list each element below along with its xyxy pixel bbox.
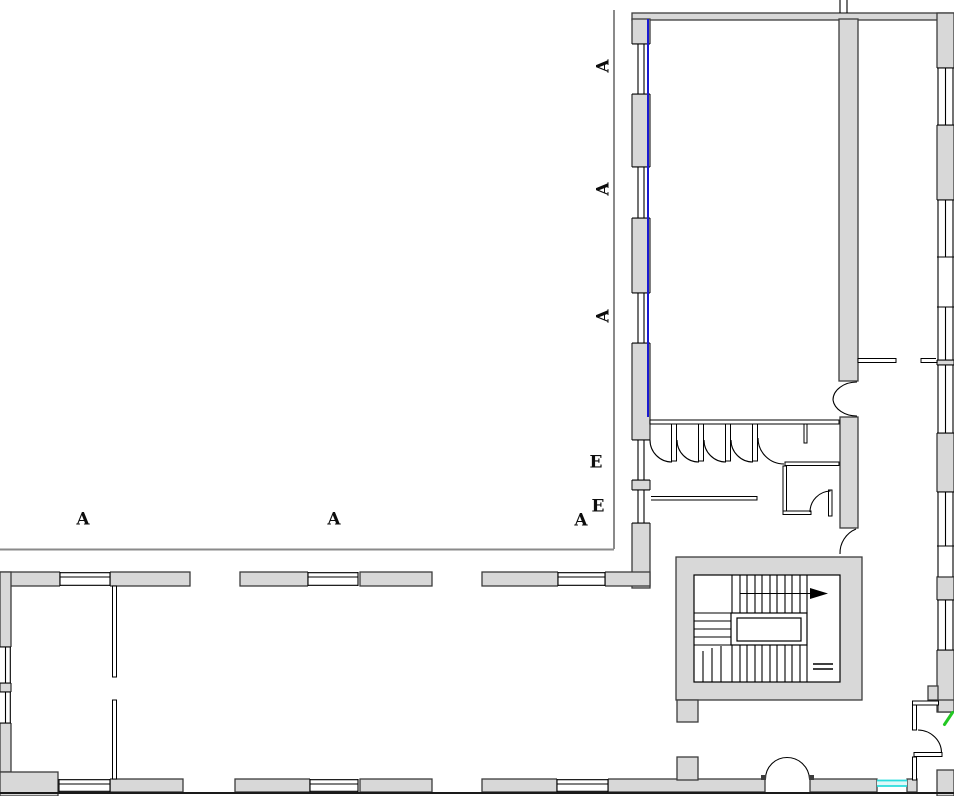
stairwell bbox=[676, 557, 862, 780]
vestibule-door bbox=[914, 730, 942, 757]
window bbox=[631, 490, 651, 523]
window bbox=[936, 307, 954, 360]
window bbox=[631, 440, 651, 480]
floor-plan-canvas: A A A E E A A A bbox=[0, 0, 954, 796]
top-wall bbox=[632, 13, 954, 20]
axis-label-a-rot-2: A bbox=[596, 182, 613, 195]
toilet-room-wall bbox=[650, 420, 839, 424]
room-partition bbox=[113, 586, 117, 677]
wall-opening bbox=[938, 546, 953, 577]
axis-label-a-rot-3: A bbox=[596, 309, 613, 322]
window bbox=[936, 68, 954, 125]
top-stub-wall bbox=[840, 0, 847, 13]
wc-door bbox=[810, 491, 831, 512]
lavatory-counter bbox=[650, 497, 757, 501]
axis-label-a-rot-1: A bbox=[596, 59, 613, 72]
window bbox=[558, 571, 605, 587]
stair-landing bbox=[731, 613, 807, 645]
window bbox=[0, 647, 12, 683]
window bbox=[936, 600, 954, 650]
axis-label-a-bot-1: A bbox=[76, 512, 89, 529]
window bbox=[308, 571, 358, 587]
axis-label-e-1: E bbox=[590, 455, 603, 472]
toilet-room-door bbox=[758, 438, 784, 464]
double-swing-door bbox=[833, 382, 857, 416]
reference-lines bbox=[0, 10, 614, 550]
right-wall-cross-stub bbox=[928, 686, 938, 700]
window bbox=[936, 492, 954, 546]
axis-label-a-bot-2: A bbox=[327, 512, 340, 529]
axis-label-a-bot-3: A bbox=[574, 513, 587, 530]
central-partition-wall bbox=[839, 19, 858, 381]
window bbox=[936, 365, 954, 433]
window bbox=[59, 778, 110, 792]
window bbox=[0, 692, 12, 723]
axis-label-e-2: E bbox=[592, 499, 605, 516]
wall-opening bbox=[938, 257, 953, 307]
window bbox=[310, 778, 358, 792]
corridor-door bbox=[840, 529, 856, 554]
floor-plan-drawing bbox=[0, 0, 954, 796]
window bbox=[936, 200, 954, 257]
window bbox=[60, 571, 110, 587]
green-mark bbox=[945, 713, 953, 725]
window bbox=[557, 778, 608, 792]
double-entrance-door bbox=[761, 757, 814, 780]
cyan-window bbox=[877, 780, 907, 787]
toilet-stall-partitions bbox=[672, 424, 808, 461]
